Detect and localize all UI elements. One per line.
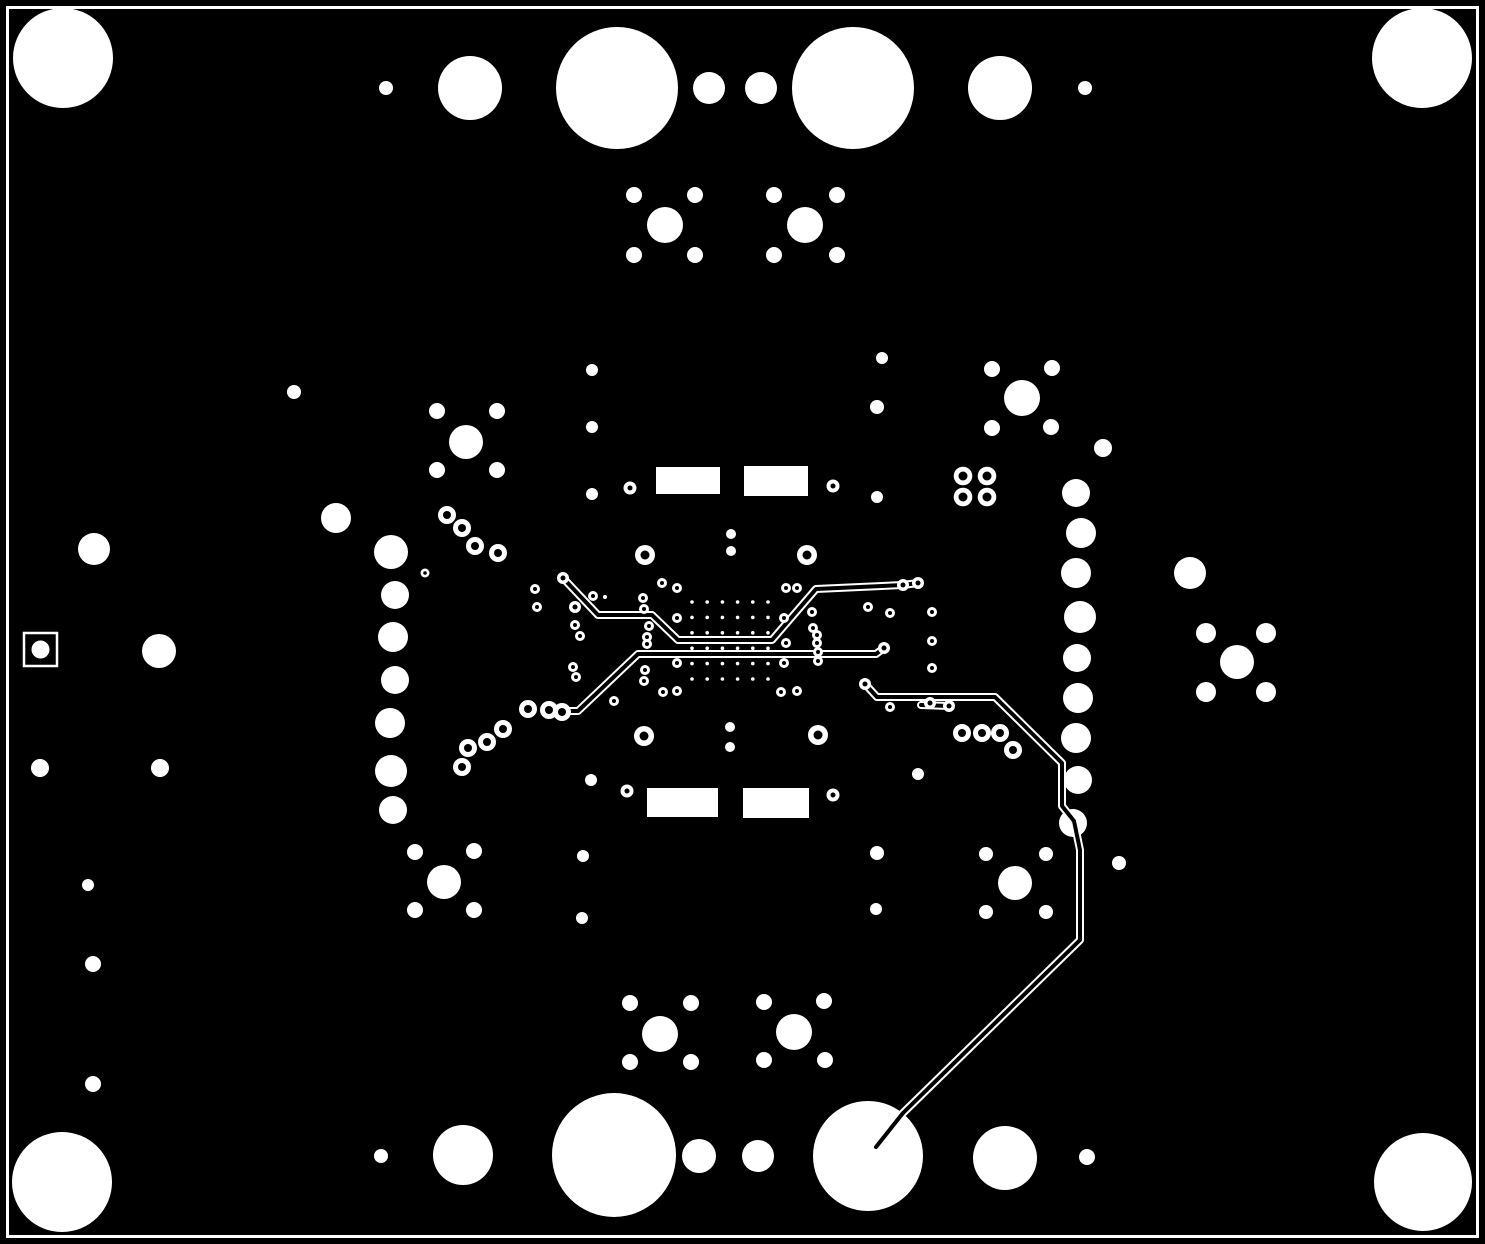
thermal-via-dot	[690, 631, 694, 635]
pad-clearance-circle	[817, 1052, 833, 1068]
pad-clearance-circle	[1112, 856, 1126, 870]
thermal-via-dot	[751, 600, 755, 604]
pad-clearance-circle	[870, 846, 884, 860]
via-ring-drill	[831, 793, 836, 798]
pad-clearance-circle	[552, 1093, 676, 1217]
thermal-via-dot	[736, 631, 740, 635]
via-ring-drill	[978, 729, 986, 737]
via-ring-drill	[831, 484, 836, 489]
via-ring-drill	[928, 701, 933, 706]
pad-clearance-circle	[776, 1014, 812, 1050]
via-ring-drill	[573, 605, 578, 610]
via-ring-drill	[533, 587, 537, 591]
via-ring-drill	[888, 705, 892, 709]
via-ring-drill	[675, 689, 679, 693]
pad-clearance-circle	[756, 1052, 772, 1068]
thermal-via-dot	[705, 677, 709, 681]
via-ring-drill	[675, 616, 679, 620]
via-ring-drill	[499, 725, 507, 733]
pad-clearance-circle	[1374, 1133, 1472, 1231]
via-ring-drill	[675, 586, 679, 590]
via-ring-drill	[795, 586, 799, 590]
thermal-via-dot	[721, 646, 725, 650]
thermal-via-dot	[721, 677, 725, 681]
pad-clearance-circle	[1196, 682, 1216, 702]
via-ring-drill	[983, 472, 992, 481]
pad-clearance-circle	[379, 81, 393, 95]
via-ring-drill	[816, 650, 820, 654]
via-ring-drill	[458, 524, 466, 532]
via-ring-drill	[641, 596, 645, 600]
pad-clearance-circle	[1196, 623, 1216, 643]
via-ring-drill	[983, 493, 992, 502]
pad-clearance-circle	[31, 759, 49, 777]
pad-clearance-circle	[693, 72, 725, 104]
via-ring-drill	[782, 661, 786, 665]
pad-clearance-circle	[1039, 847, 1053, 861]
pad-clearance-circle	[756, 994, 772, 1010]
pad-clearance-circle	[374, 535, 408, 569]
thermal-via-dot	[736, 616, 740, 620]
pad-clearance-circle	[1044, 360, 1060, 376]
via-ring-drill	[641, 551, 650, 560]
thermal-via-dot	[721, 616, 725, 620]
thermal-via-dot	[690, 677, 694, 681]
smd-pad-rect	[744, 466, 808, 496]
via-ring-drill	[779, 690, 783, 694]
via-ring-drill	[494, 549, 502, 557]
smd-pad-rect	[647, 788, 718, 817]
pad-clearance-circle	[1061, 723, 1091, 753]
thermal-via-dot	[766, 646, 770, 650]
thermal-via-dot	[721, 600, 725, 604]
via-ring-drill	[916, 581, 921, 586]
pad-clearance-circle	[1066, 518, 1096, 548]
via-ring-drill	[612, 699, 616, 703]
pad-clearance-circle	[1078, 81, 1092, 95]
pad-clearance-circle	[813, 1101, 923, 1211]
pad-clearance-circle	[912, 768, 924, 780]
pad-clearance-circle	[1256, 682, 1276, 702]
pad-clearance-circle	[683, 1054, 699, 1070]
via-ring-drill	[464, 744, 472, 752]
pad-clearance-circle	[13, 8, 113, 108]
pad-clearance-circle	[1063, 644, 1091, 672]
pad-clearance-circle	[151, 759, 169, 777]
pad-clearance-circle	[726, 529, 736, 539]
pad-clearance-circle	[816, 993, 832, 1009]
pad-clearance-circle	[374, 1149, 388, 1163]
pad-clearance-circle	[1062, 479, 1090, 507]
pad-clearance-circle	[381, 666, 409, 694]
via-ring-drill	[863, 682, 868, 687]
via-ring-drill	[1009, 746, 1017, 754]
pad-clearance-circle	[766, 187, 782, 203]
via-ring-drill	[959, 493, 968, 502]
via-ring-drill	[866, 605, 870, 609]
thermal-via-dot	[721, 662, 725, 666]
pad-clearance-circle	[407, 844, 423, 860]
pad-clearance-circle	[85, 956, 101, 972]
pad-clearance-circle	[1061, 558, 1091, 588]
pad-clearance-circle	[1064, 766, 1092, 794]
pad-clearance-circle	[787, 207, 823, 243]
pad-clearance-circle	[622, 995, 638, 1011]
pad-clearance-circle	[321, 503, 351, 533]
pad-clearance-circle	[1256, 623, 1276, 643]
via-ring-drill	[784, 586, 788, 590]
pad-clearance-circle	[1039, 905, 1053, 919]
thermal-via-dot	[721, 631, 725, 635]
pad-clearance-circle	[556, 27, 678, 149]
via-ring-drill	[811, 626, 815, 630]
via-ring-drill	[795, 689, 799, 693]
pad-clearance-circle	[725, 722, 735, 732]
pad-clearance-circle	[489, 462, 505, 478]
pad-clearance-circle	[12, 1132, 112, 1232]
via-ring-drill	[930, 610, 934, 614]
via-ring-drill	[810, 610, 814, 614]
pad-clearance-circle	[82, 879, 94, 891]
via-ring-drill	[561, 576, 566, 581]
via-ring-drill	[816, 659, 820, 663]
pad-clearance-circle	[726, 546, 736, 556]
via-ring-drill	[784, 641, 788, 645]
pad-clearance-circle	[381, 581, 409, 609]
thermal-via-dot	[751, 631, 755, 635]
via-ring-drill	[423, 571, 427, 575]
via-ring-drill	[443, 511, 451, 519]
pad-clearance-circle	[642, 1016, 678, 1052]
pad-clearance-circle	[979, 847, 993, 861]
thermal-via-dot	[736, 646, 740, 650]
pad-clearance-circle	[577, 850, 589, 862]
thermal-via-dot	[766, 631, 770, 635]
pad-clearance-circle	[622, 1054, 638, 1070]
pad-clearance-circle	[1174, 557, 1206, 589]
thermal-via-dot	[751, 677, 755, 681]
pad-clearance-circle	[766, 247, 782, 263]
via-ring-drill	[882, 646, 887, 651]
pad-clearance-circle	[1079, 1149, 1095, 1165]
via-ring-drill	[930, 666, 934, 670]
via-ring-drill	[640, 732, 649, 741]
via-ring-drill	[591, 594, 595, 598]
via-ring-drill	[628, 486, 633, 491]
via-ring-drill	[625, 789, 630, 794]
pad-clearance-circle	[603, 595, 607, 599]
pad-clearance-circle	[626, 187, 642, 203]
pad-clearance-circle	[438, 56, 502, 120]
thermal-via-dot	[690, 600, 694, 604]
pad-clearance-circle	[876, 352, 888, 364]
via-ring-drill	[578, 634, 582, 638]
via-ring-drill	[545, 706, 553, 714]
pad-clearance-circle	[626, 247, 642, 263]
pad-clearance-circle	[683, 995, 699, 1011]
pad-clearance-circle	[586, 421, 598, 433]
pad-clearance-circle	[742, 1140, 774, 1172]
thermal-via-dot	[736, 600, 740, 604]
via-ring-drill	[815, 641, 819, 645]
via-ring-drill	[947, 704, 952, 709]
fiducial-dot	[32, 641, 50, 659]
pad-clearance-circle	[78, 533, 110, 565]
pad-clearance-circle	[375, 708, 405, 738]
smd-pad-rect	[656, 467, 720, 494]
pad-clearance-circle	[449, 425, 483, 459]
thermal-via-dot	[736, 677, 740, 681]
via-ring-drill	[471, 542, 479, 550]
pad-clearance-circle	[586, 364, 598, 376]
pad-clearance-circle	[1064, 601, 1096, 633]
pad-clearance-circle	[870, 400, 884, 414]
pad-clearance-circle	[427, 865, 461, 899]
thermal-via-dot	[766, 677, 770, 681]
via-ring-drill	[458, 763, 466, 771]
via-ring-drill	[782, 616, 786, 620]
thermal-via-dot	[705, 600, 709, 604]
via-ring-drill	[958, 729, 966, 737]
pad-clearance-circle	[586, 488, 598, 500]
copper-plane	[0, 0, 1485, 1244]
pad-clearance-circle	[1043, 419, 1059, 435]
pad-clearance-circle	[687, 187, 703, 203]
via-ring-drill	[901, 583, 906, 588]
via-ring-drill	[642, 607, 646, 611]
via-ring-drill	[814, 731, 823, 740]
pad-clearance-circle	[792, 27, 914, 149]
pcb-gerber-viewer	[0, 0, 1485, 1244]
pad-clearance-circle	[429, 403, 445, 419]
pad-clearance-circle	[998, 866, 1032, 900]
pad-clearance-circle	[407, 902, 423, 918]
pad-clearance-circle	[1220, 645, 1254, 679]
via-ring-drill	[930, 639, 934, 643]
pad-clearance-circle	[466, 902, 482, 918]
thermal-via-dot	[751, 662, 755, 666]
pad-clearance-circle	[433, 1125, 493, 1185]
via-ring-drill	[642, 679, 646, 683]
pad-clearance-circle	[287, 385, 301, 399]
pad-clearance-circle	[871, 491, 883, 503]
thermal-via-dot	[766, 616, 770, 620]
via-ring-drill	[660, 581, 664, 585]
thermal-via-dot	[751, 616, 755, 620]
pad-clearance-circle	[682, 1139, 716, 1173]
pad-clearance-circle	[647, 207, 683, 243]
via-ring-drill	[558, 708, 566, 716]
thermal-via-dot	[766, 662, 770, 666]
via-ring-drill	[573, 623, 577, 627]
via-ring-drill	[524, 705, 532, 713]
pad-clearance-circle	[1004, 380, 1040, 416]
thermal-via-dot	[690, 646, 694, 650]
via-ring-drill	[959, 472, 968, 481]
thermal-via-dot	[705, 646, 709, 650]
pad-clearance-circle	[85, 1076, 101, 1092]
thermal-via-dot	[705, 616, 709, 620]
via-ring-drill	[643, 668, 647, 672]
pad-clearance-circle	[984, 420, 1000, 436]
via-ring-drill	[815, 633, 819, 637]
pad-clearance-circle	[489, 403, 505, 419]
pad-clearance-circle	[745, 72, 777, 104]
pcb-layer-svg	[0, 0, 1485, 1244]
smd-pad-rect	[743, 788, 809, 818]
thermal-via-dot	[751, 646, 755, 650]
pad-clearance-circle	[687, 247, 703, 263]
via-ring-drill	[571, 665, 575, 669]
via-ring-drill	[483, 738, 491, 746]
thermal-via-dot	[690, 616, 694, 620]
via-ring-drill	[574, 675, 578, 679]
pad-clearance-circle	[973, 1126, 1037, 1190]
pad-clearance-circle	[429, 462, 445, 478]
pad-clearance-circle	[829, 247, 845, 263]
pad-clearance-circle	[829, 187, 845, 203]
pad-clearance-circle	[1094, 439, 1112, 457]
pad-clearance-circle	[984, 361, 1000, 377]
thermal-via-dot	[705, 662, 709, 666]
pad-clearance-circle	[968, 56, 1032, 120]
via-ring-drill	[645, 635, 649, 639]
via-ring-drill	[647, 624, 651, 628]
thermal-via-dot	[690, 662, 694, 666]
pad-clearance-circle	[585, 774, 597, 786]
thermal-via-dot	[766, 600, 770, 604]
via-ring-drill	[535, 605, 539, 609]
thermal-via-dot	[736, 662, 740, 666]
pad-clearance-circle	[378, 622, 408, 652]
pad-clearance-circle	[375, 755, 407, 787]
via-ring-drill	[675, 661, 679, 665]
pad-clearance-circle	[870, 903, 882, 915]
pad-clearance-circle	[379, 796, 407, 824]
via-ring-drill	[661, 690, 665, 694]
pad-clearance-circle	[576, 912, 588, 924]
thermal-via-dot	[705, 631, 709, 635]
via-ring-drill	[888, 611, 892, 615]
pad-clearance-circle	[1063, 683, 1093, 713]
via-ring-drill	[803, 551, 812, 560]
via-ring-drill	[645, 642, 649, 646]
pad-clearance-circle	[1372, 8, 1472, 108]
pad-clearance-circle	[725, 742, 735, 752]
pad-clearance-circle	[466, 843, 482, 859]
via-ring-drill	[996, 729, 1004, 737]
pad-clearance-circle	[142, 634, 176, 668]
pad-clearance-circle	[979, 905, 993, 919]
